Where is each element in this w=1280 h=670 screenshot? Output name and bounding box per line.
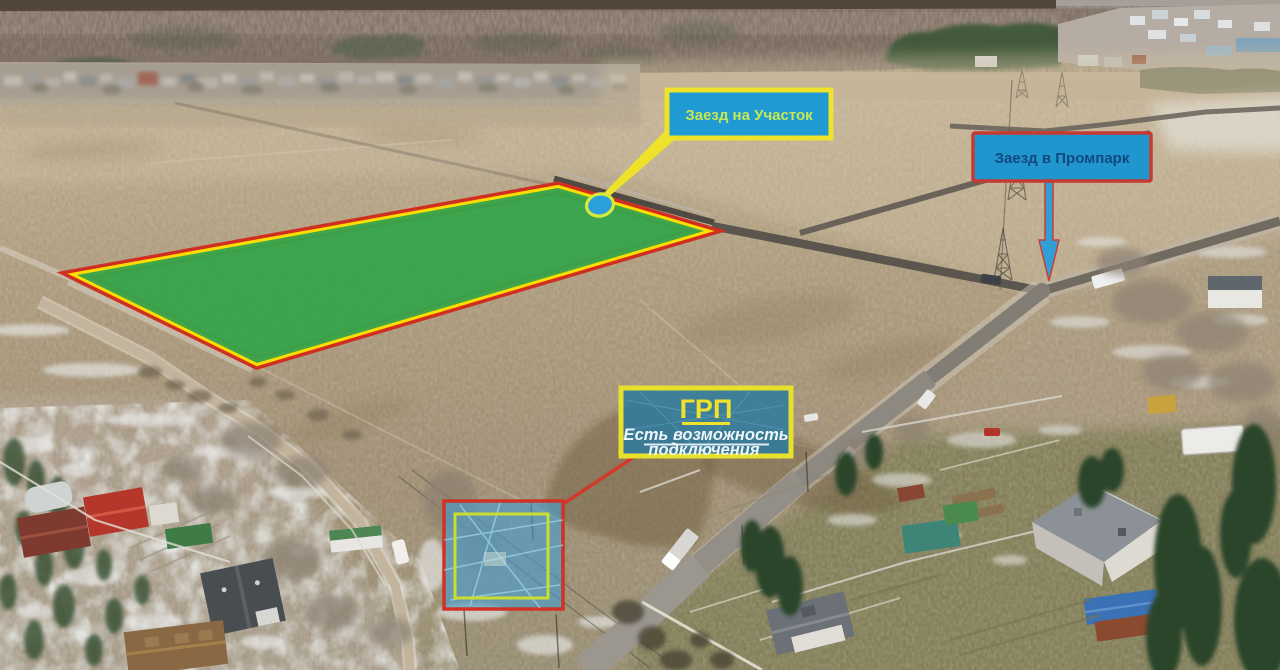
svg-text:подключения: подключения: [648, 441, 759, 459]
svg-text:Заезд в Промпарк: Заезд в Промпарк: [995, 150, 1130, 167]
svg-text:Заезд на Участок: Заезд на Участок: [685, 107, 813, 124]
svg-text:ГРП: ГРП: [680, 394, 733, 424]
